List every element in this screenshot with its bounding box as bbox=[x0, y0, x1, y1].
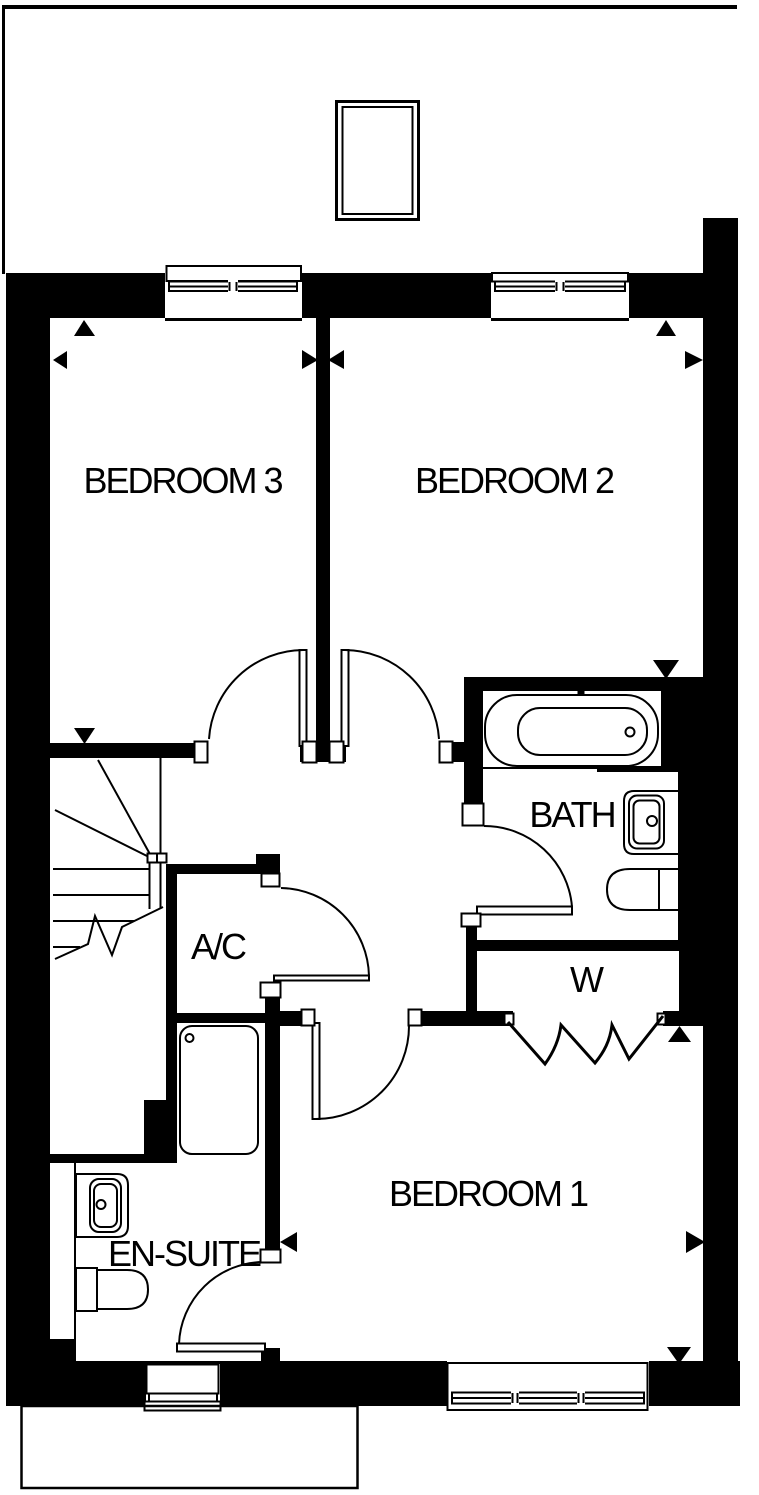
svg-text:W: W bbox=[570, 959, 604, 1000]
svg-text:BATH: BATH bbox=[529, 794, 614, 835]
svg-text:BEDROOM 1: BEDROOM 1 bbox=[389, 1173, 588, 1214]
svg-text:A/C: A/C bbox=[191, 926, 246, 967]
svg-text:BEDROOM 3: BEDROOM 3 bbox=[83, 460, 282, 501]
svg-text:EN-SUITE: EN-SUITE bbox=[108, 1233, 261, 1274]
svg-text:BEDROOM 2: BEDROOM 2 bbox=[415, 460, 614, 501]
